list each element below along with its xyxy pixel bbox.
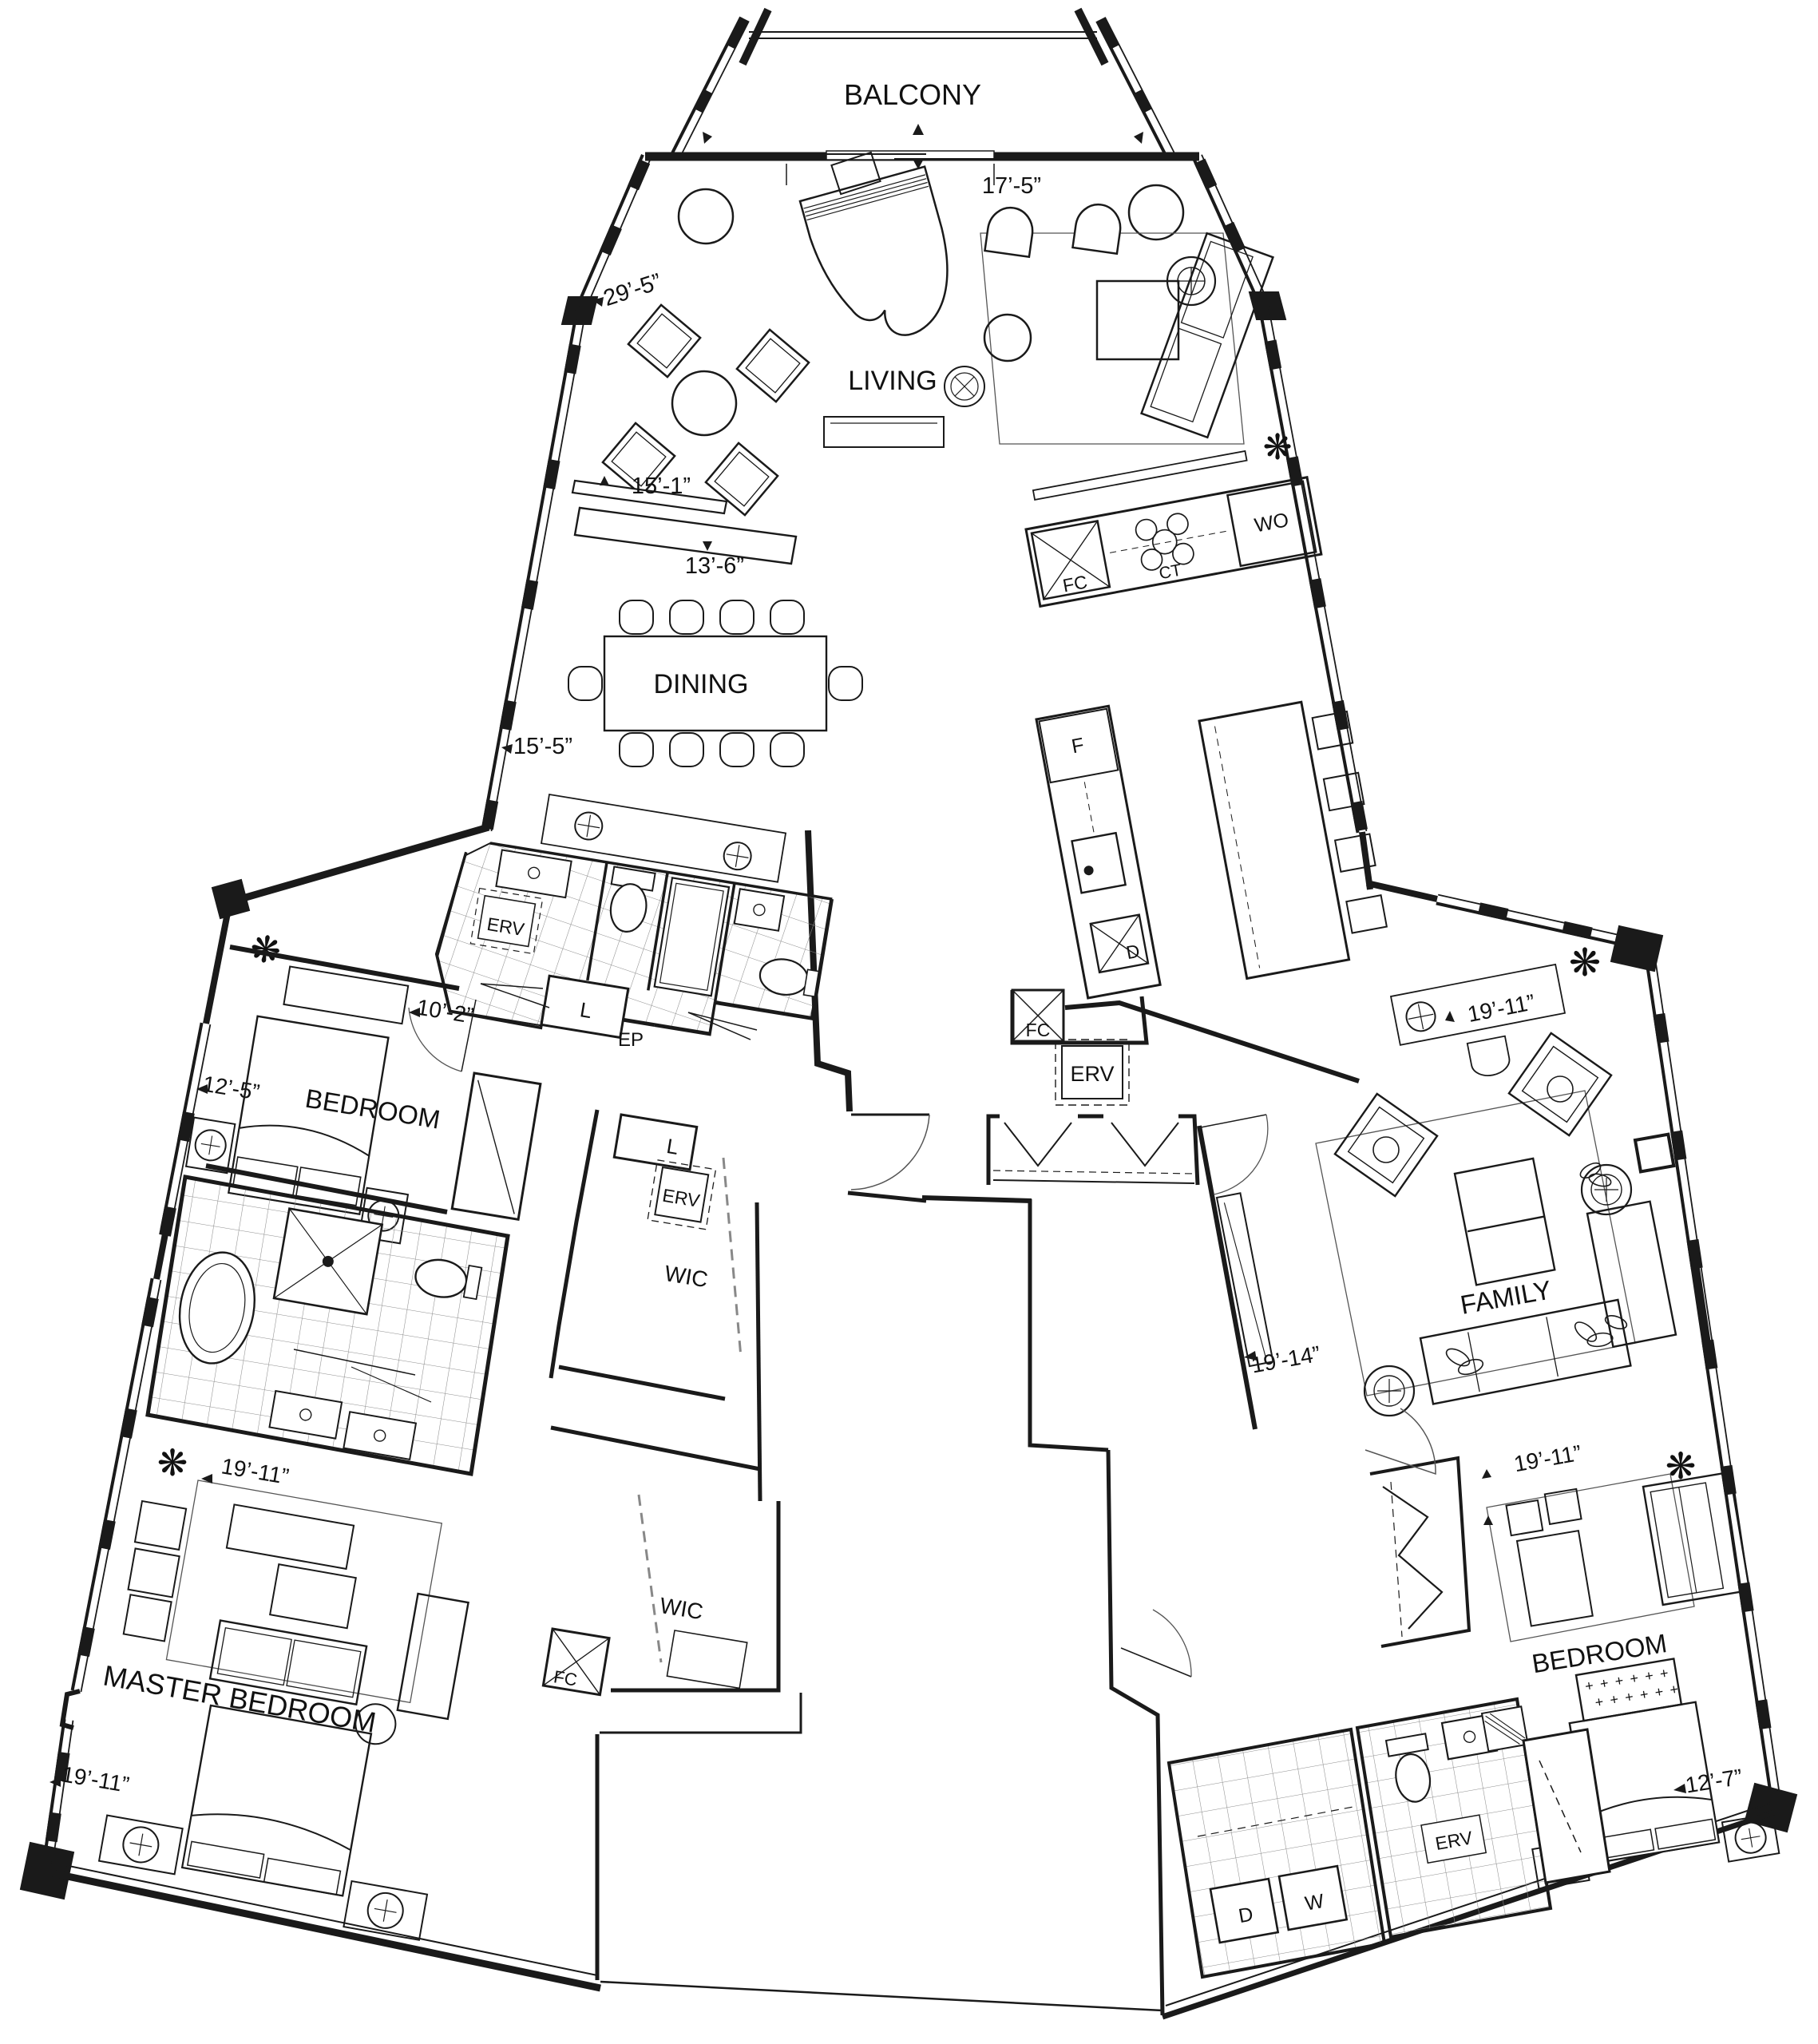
svg-text:❋: ❋ (157, 1442, 188, 1483)
svg-text:❋: ❋ (1263, 428, 1293, 467)
svg-text:FC: FC (1026, 1020, 1051, 1040)
svg-text:15’-1”: 15’-1” (632, 473, 691, 499)
svg-text:❋: ❋ (1569, 942, 1601, 984)
svg-text:DINING: DINING (654, 669, 749, 699)
svg-text:13’-6”: 13’-6” (685, 553, 744, 579)
svg-text:❋: ❋ (1666, 1445, 1697, 1487)
svg-text:ERV: ERV (1070, 1062, 1114, 1086)
svg-text:EP: EP (618, 1029, 644, 1051)
svg-text:17’-5”: 17’-5” (982, 173, 1041, 199)
svg-text:BALCONY: BALCONY (844, 78, 981, 111)
svg-text:15’-5”: 15’-5” (513, 734, 572, 759)
svg-text:FC: FC (553, 1666, 579, 1689)
svg-text:LIVING: LIVING (848, 366, 937, 396)
svg-text:FC: FC (1061, 571, 1089, 596)
